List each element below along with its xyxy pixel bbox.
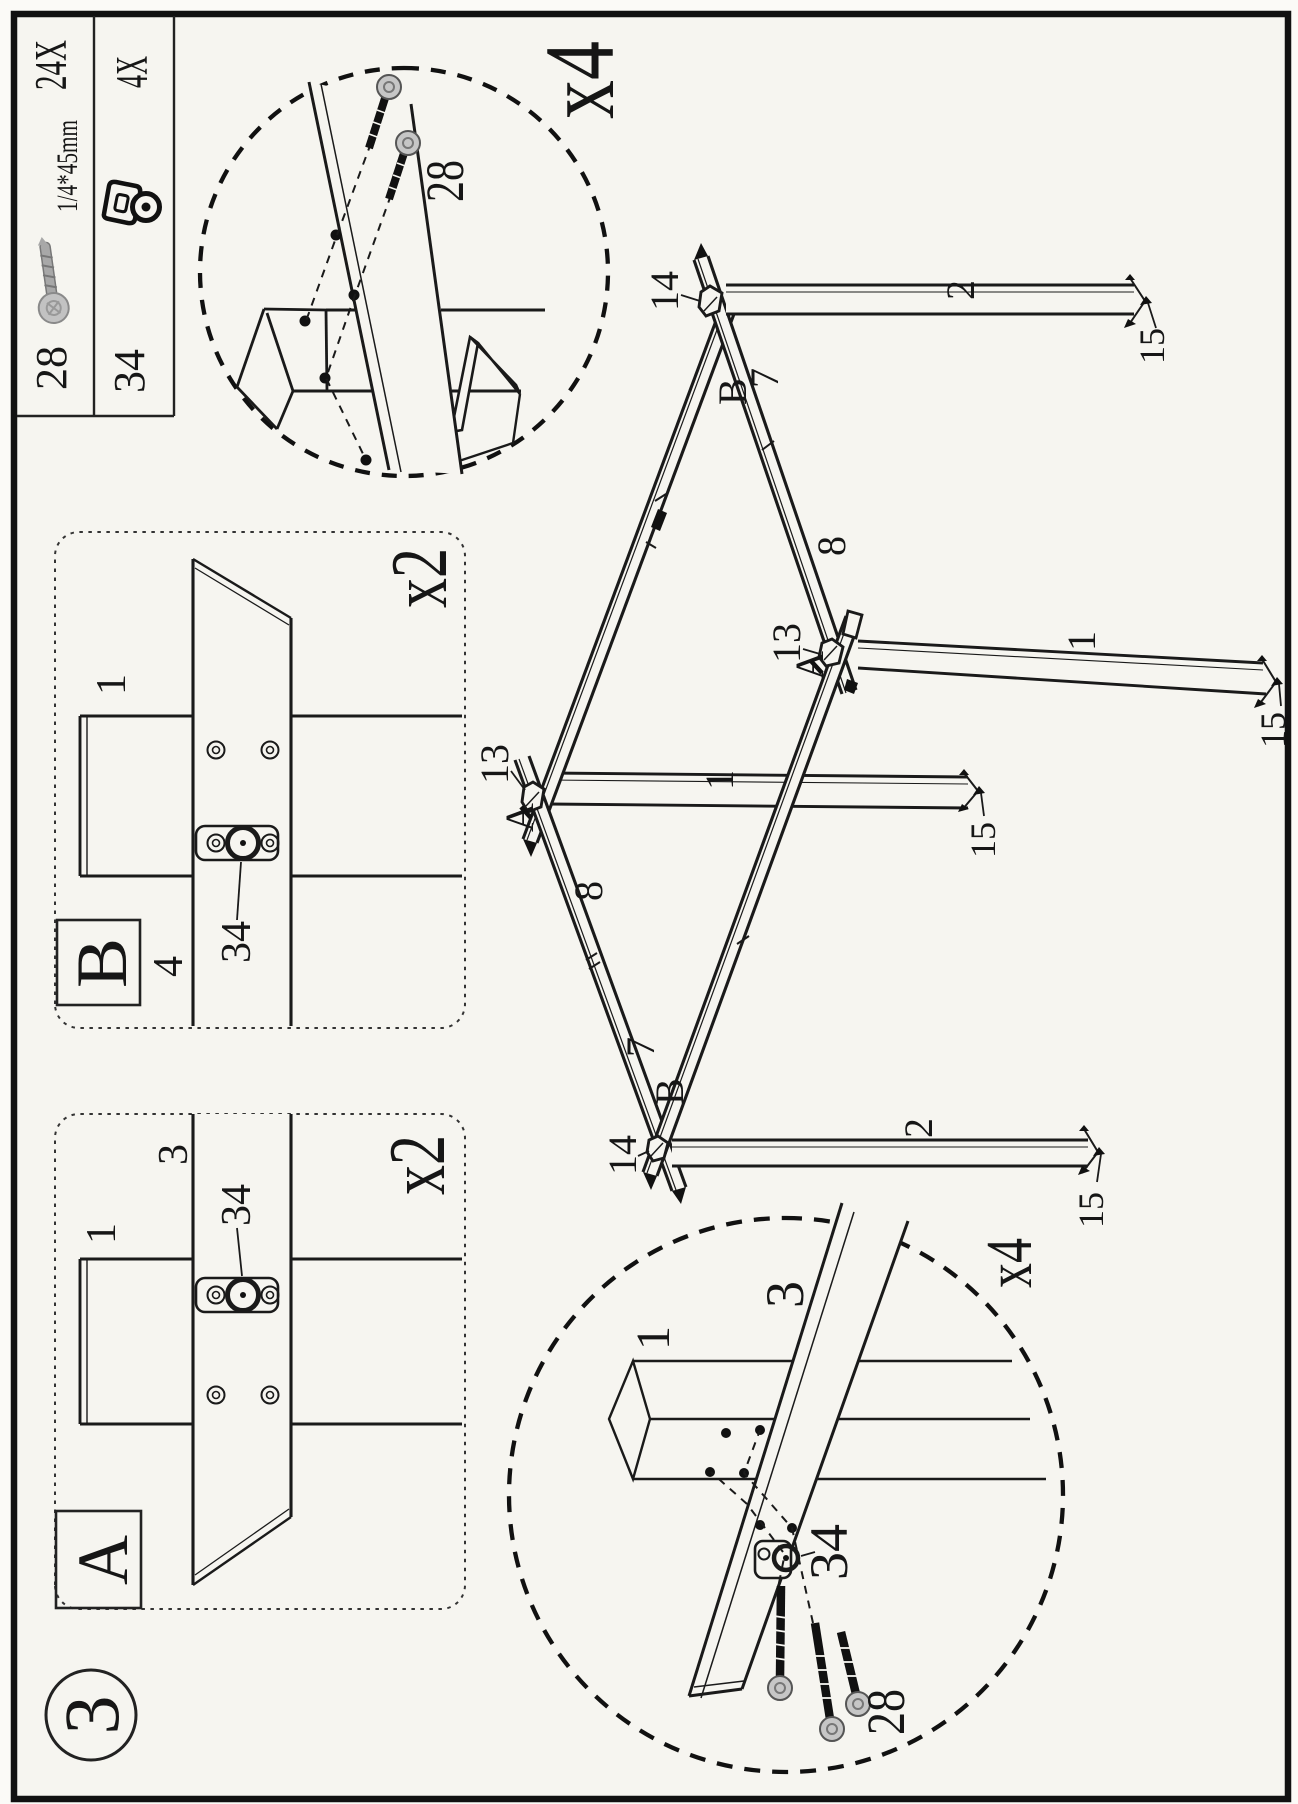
- svg-text:34: 34: [105, 349, 154, 393]
- svg-text:1: 1: [79, 1223, 125, 1244]
- svg-text:4X: 4X: [107, 56, 157, 88]
- svg-text:34: 34: [214, 921, 260, 963]
- svg-text:28: 28: [415, 160, 475, 202]
- svg-text:2: 2: [938, 280, 983, 300]
- svg-text:x4: x4: [524, 41, 635, 119]
- svg-text:3: 3: [151, 1144, 197, 1165]
- svg-text:14: 14: [642, 271, 687, 311]
- svg-text:x2: x2: [376, 548, 464, 608]
- svg-text:34: 34: [799, 1524, 859, 1580]
- svg-text:B: B: [62, 938, 142, 988]
- svg-text:3: 3: [755, 1281, 815, 1308]
- svg-text:8: 8: [809, 536, 854, 556]
- svg-text:8: 8: [566, 881, 611, 901]
- svg-text:28: 28: [856, 1689, 916, 1735]
- svg-text:15: 15: [963, 822, 1003, 858]
- svg-text:3: 3: [48, 1696, 135, 1735]
- svg-text:1: 1: [627, 1326, 680, 1350]
- svg-text:1: 1: [1059, 631, 1104, 651]
- svg-text:A: A: [497, 803, 542, 832]
- svg-text:4: 4: [146, 956, 192, 977]
- svg-text:1: 1: [89, 674, 135, 695]
- svg-text:28: 28: [27, 346, 76, 390]
- svg-text:1: 1: [697, 770, 742, 790]
- svg-text:1/4*45mm: 1/4*45mm: [51, 120, 84, 212]
- svg-text:A: A: [787, 651, 832, 680]
- svg-text:B: B: [647, 1078, 692, 1105]
- svg-text:A: A: [63, 1535, 143, 1585]
- svg-text:2: 2: [896, 1118, 941, 1138]
- svg-text:x4: x4: [973, 1238, 1046, 1288]
- svg-text:34: 34: [214, 1184, 260, 1226]
- svg-text:7: 7: [618, 1037, 663, 1057]
- svg-text:7: 7: [742, 368, 787, 388]
- svg-text:15: 15: [1253, 712, 1293, 748]
- svg-text:13: 13: [472, 744, 517, 784]
- svg-text:x2: x2: [374, 1135, 462, 1195]
- svg-text:15: 15: [1132, 328, 1172, 364]
- svg-text:24X: 24X: [26, 40, 76, 90]
- svg-text:15: 15: [1071, 1192, 1111, 1228]
